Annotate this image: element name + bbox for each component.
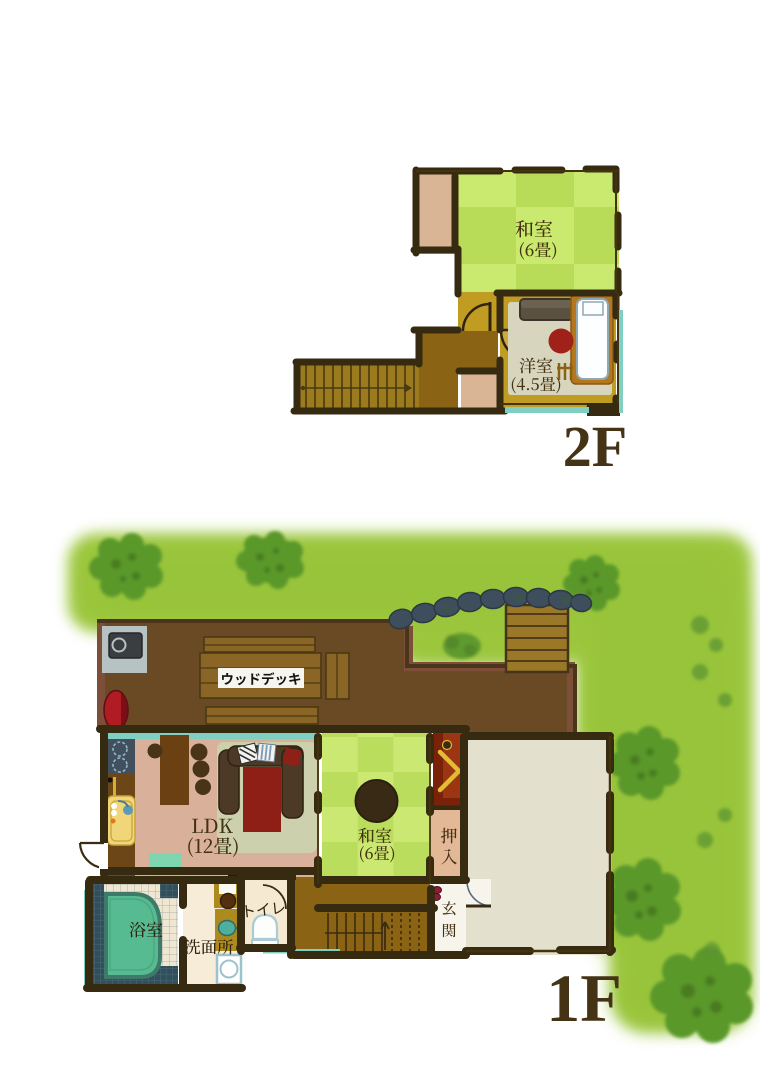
svg-text:2F: 2F	[563, 414, 627, 479]
svg-text:1F: 1F	[546, 960, 622, 1036]
